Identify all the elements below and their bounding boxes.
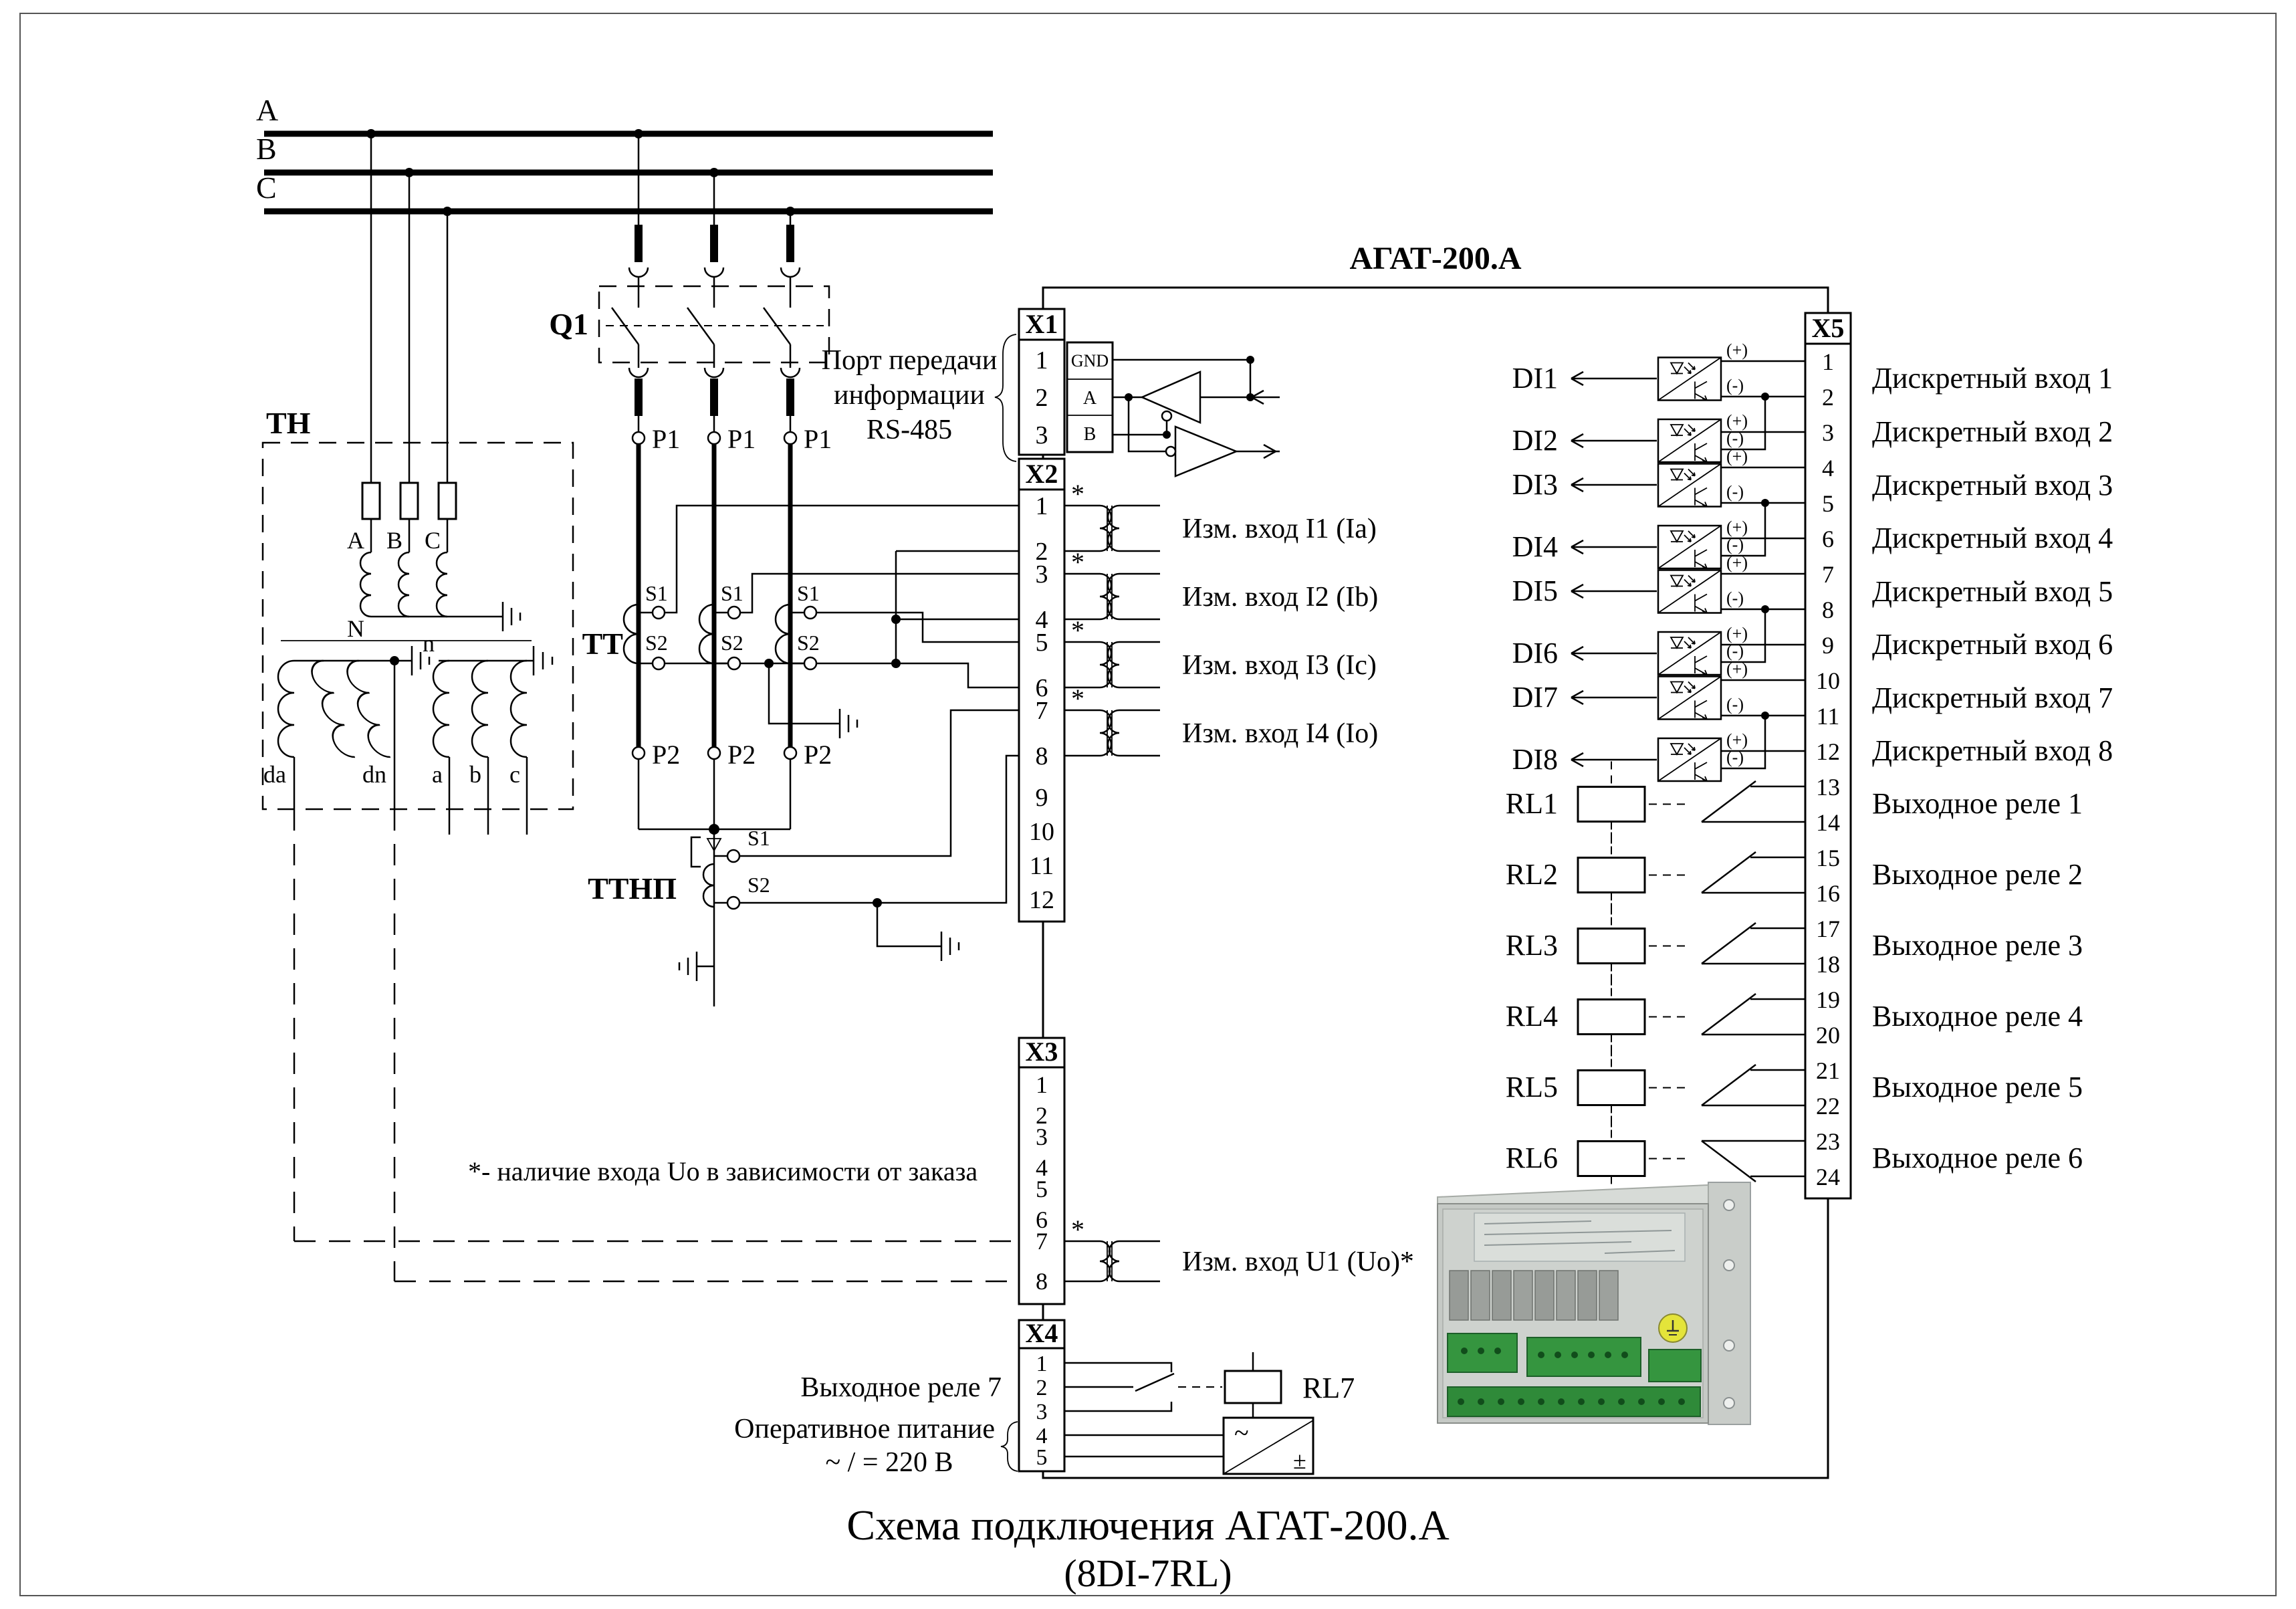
ttnp-label: ТТНП [588,871,677,905]
svg-text:8: 8 [1036,742,1048,770]
relay-rl6: RL6 Выходное реле 6 [1506,1116,2083,1202]
tn-phase-b-label: B [386,527,403,554]
svg-text:RL3: RL3 [1506,929,1558,962]
optocoupler-icon [1658,358,1721,401]
svg-text:2: 2 [1036,384,1048,412]
ttnp-s1-label: S1 [748,826,770,850]
svg-text:*: * [1071,547,1084,577]
svg-text:12: 12 [1816,738,1840,765]
svg-text:(-): (-) [1726,429,1744,448]
connector-x4: X4 1 2 3 4 5 RL7 Выходное реле 7 ~ ± Опе… [734,1318,1355,1478]
relay-contact-icon [1702,1065,1805,1105]
svg-text:3: 3 [1036,560,1048,588]
svg-text:2: 2 [1822,384,1834,411]
svg-text:Дискретный вход 3: Дискретный вход 3 [1872,469,2113,502]
input-u1-label: Изм. вход U1 (Uo)* [1182,1247,1414,1277]
bus-a-label: A [256,93,278,127]
x1-label: X1 [1026,309,1058,339]
input-i3-label: Изм. вход I3 (Ic) [1182,650,1377,681]
q1-disconnector: Q1 [549,134,829,432]
svg-text:Выходное реле 3: Выходное реле 3 [1872,929,2083,962]
relay-coil-icon [1578,833,1689,918]
svg-text:16: 16 [1816,880,1840,907]
relay-coil-icon [1578,903,1689,989]
svg-text:RL4: RL4 [1506,1000,1558,1033]
rl7-label: RL7 [1302,1372,1355,1404]
footnote: *- наличие входа Uo в зависимости от зак… [468,1156,978,1186]
x5-label: X5 [1812,313,1845,343]
svg-text:24: 24 [1816,1164,1840,1190]
ground-icon [679,952,714,981]
input-transformer-u1 [1064,1241,1160,1281]
svg-text:1: 1 [1036,1071,1048,1098]
device-photo [1438,1182,1750,1424]
ground-icon [822,709,857,738]
svg-text:(+): (+) [1726,447,1748,466]
svg-text:8: 8 [1036,1268,1048,1295]
optocoupler-icon [1658,526,1721,568]
svg-text:3: 3 [1822,419,1834,446]
svg-text:DI5: DI5 [1512,574,1558,607]
svg-text:2: 2 [1036,1376,1048,1400]
brace-icon [995,334,1016,461]
svg-text:5: 5 [1822,490,1834,517]
connector-x1: Порт передачи информации RS-485 X1 1 2 3… [822,309,1280,476]
svg-text:5: 5 [1036,1176,1048,1202]
bus-c-label: C [256,171,277,205]
svg-text:9: 9 [1036,784,1048,812]
svg-text:1: 1 [1036,346,1048,374]
relay-rl2: RL2 Выходное реле 2 [1506,833,2083,918]
svg-text:Дискретный вход 7: Дискретный вход 7 [1872,681,2113,714]
tt-p1-label: P1 [652,424,680,454]
device-title: АГАТ-200.А [1349,241,1521,276]
svg-text:10: 10 [1029,818,1054,846]
svg-text:(-): (-) [1726,588,1744,608]
svg-text:4: 4 [1822,455,1834,481]
svg-text:Выходное реле 5: Выходное реле 5 [1872,1071,2083,1103]
svg-text:8: 8 [1822,597,1834,623]
tn-phase-a-label: A [347,527,364,554]
x2-label: X2 [1026,459,1058,489]
x3-label: X3 [1026,1037,1058,1067]
bus-bars: A B C [256,93,993,216]
svg-text:Дискретный вход 5: Дискретный вход 5 [1872,575,2113,608]
svg-text:S1: S1 [797,581,820,605]
svg-text:(-): (-) [1726,535,1744,554]
svg-text:Дискретный вход 1: Дискретный вход 1 [1872,362,2113,395]
optocoupler-icon [1658,419,1721,462]
svg-text:7: 7 [1822,561,1834,588]
x1-caption-2: информации [834,380,985,411]
input-transformer-i3 [1064,642,1160,687]
x4-label: X4 [1026,1318,1058,1348]
svg-text:(-): (-) [1726,376,1744,395]
svg-text:(+): (+) [1726,411,1748,431]
relay-contact-icon [1702,923,1805,964]
bus-b-label: B [256,132,277,166]
svg-text:GND: GND [1071,351,1109,370]
svg-text:*: * [1071,615,1084,645]
svg-text:12: 12 [1029,886,1054,914]
ground-icon [485,602,520,631]
svg-text:Дискретный вход 4: Дискретный вход 4 [1872,522,2113,554]
tn-phase-c-label: C [425,527,441,554]
svg-text:15: 15 [1816,845,1840,871]
power-supply: ~ ± [1064,1418,1313,1474]
svg-text:*: * [1071,683,1084,714]
svg-text:Выходное реле 1: Выходное реле 1 [1872,787,2083,820]
svg-text:RL1: RL1 [1506,787,1558,820]
svg-text:(+): (+) [1726,553,1748,572]
svg-text:3: 3 [1036,1400,1048,1424]
svg-text:(+): (+) [1726,730,1748,750]
dc-symbol: ± [1293,1447,1306,1474]
svg-text:(-): (-) [1726,695,1744,714]
svg-text:(+): (+) [1726,624,1748,643]
svg-text:7: 7 [1036,1228,1048,1255]
input-i2-label: Изм. вход I2 (Ib) [1182,582,1378,613]
ac-symbol: ~ [1234,1418,1249,1448]
svg-text:DI1: DI1 [1512,362,1558,395]
svg-text:3: 3 [1036,421,1048,449]
svg-text:S2: S2 [797,631,820,655]
tn-nsmall-label: n [423,630,435,657]
title-block: Схема подключения АГАТ-200.А (8DI-7RL) [846,1501,1449,1595]
ttnp-s2-label: S2 [748,873,770,897]
svg-text:DI3: DI3 [1512,468,1558,501]
svg-text:S1: S1 [721,581,743,605]
svg-text:(-): (-) [1726,748,1744,767]
svg-text:1: 1 [1036,1352,1048,1376]
input-i4-label: Изм. вход I4 (Io) [1182,718,1378,749]
svg-text:17: 17 [1816,916,1840,942]
relay-contact-icon [1702,994,1805,1035]
tt-s2-label: S2 [645,631,668,655]
title-line-2: (8DI-7RL) [1064,1551,1232,1595]
optocoupler-icon [1658,677,1721,720]
svg-text:P1: P1 [804,424,832,454]
svg-text:11: 11 [1030,852,1054,880]
svg-text:19: 19 [1816,986,1840,1013]
svg-text:P1: P1 [727,424,756,454]
connector-x2: X2 1 2 3 4 5 6 7 8 9 10 11 12 * * * * Из… [1019,459,1378,922]
svg-text:RL6: RL6 [1506,1142,1558,1174]
relay-contact-icon [1702,1141,1805,1182]
svg-text:1: 1 [1822,348,1834,375]
schematic-page: A B C ТН A B C N da dn n a b c Q [0,0,2296,1609]
svg-text:Выходное реле 2: Выходное реле 2 [1872,858,2083,891]
svg-text:7: 7 [1036,697,1048,725]
fuse-a [362,483,380,519]
svg-text:P2: P2 [804,740,832,770]
svg-text:21: 21 [1816,1057,1840,1084]
tn-a-label: a [432,761,443,788]
relay-coil-icon [1578,974,1689,1060]
svg-text:5: 5 [1036,629,1048,657]
relay-rl1: RL1 Выходное реле 1 [1506,762,2083,847]
svg-text:Дискретный вход 8: Дискретный вход 8 [1872,734,2113,767]
svg-text:DI7: DI7 [1512,681,1558,714]
svg-text:P2: P2 [727,740,756,770]
svg-text:20: 20 [1816,1022,1840,1049]
connector-x3: X3 1 2 3 4 5 6 7 8 * Изм. вход U1 (Uo)* [1019,1037,1414,1304]
svg-text:DI8: DI8 [1512,743,1558,776]
svg-text:23: 23 [1816,1128,1840,1155]
svg-text:DI4: DI4 [1512,530,1558,563]
relay-rl4: RL4 Выходное реле 4 [1506,974,2083,1060]
relay-coil-icon [1578,762,1689,847]
svg-text:DI6: DI6 [1512,637,1558,669]
svg-text:14: 14 [1816,809,1840,836]
brace-icon [1001,1422,1018,1471]
tt-current-transformers: ТТ P1 S1 S2 P2 P1 S1 S2 P2 P1 S1 S2 P2 [582,424,832,829]
power-caption-2: ~ / = 220 В [825,1447,953,1478]
svg-text:RL2: RL2 [1506,858,1558,891]
relay-contact-icon [1702,781,1805,822]
svg-text:Выходное реле 6: Выходное реле 6 [1872,1142,2083,1174]
svg-text:(-): (-) [1726,482,1744,502]
svg-text:(+): (+) [1726,518,1748,537]
svg-text:11: 11 [1817,703,1840,730]
fuse-b [400,483,418,519]
relay-rl7: RL7 [1064,1352,1355,1422]
svg-text:B: B [1084,424,1097,445]
q1-label: Q1 [549,307,588,341]
tn-n-label: N [347,615,364,642]
svg-text:10: 10 [1816,667,1840,694]
svg-text:18: 18 [1816,951,1840,978]
x1-caption-1: Порт передачи [822,345,998,376]
relay-contact-icon [1702,852,1805,893]
tn-label: ТН [266,406,311,440]
relay7-caption: Выходное реле 7 [800,1372,1002,1403]
tt-p2-label: P2 [652,740,680,770]
svg-text:(+): (+) [1726,659,1748,679]
optocoupler-icon [1658,738,1721,781]
input-transformer-i2 [1064,574,1160,619]
input-transformer-i4 [1064,710,1160,756]
relay-rl3: RL3 Выходное реле 3 [1506,903,2083,989]
svg-text:22: 22 [1816,1093,1840,1119]
svg-text:Дискретный вход 6: Дискретный вход 6 [1872,628,2113,661]
svg-text:6: 6 [1822,526,1834,552]
schematic-canvas: A B C ТН A B C N da dn n a b c Q [0,0,2296,1609]
tn-c-label: c [509,761,520,788]
svg-text:13: 13 [1816,774,1840,800]
svg-text:Выходное реле 4: Выходное реле 4 [1872,1000,2083,1033]
tn-b-label: b [469,761,481,788]
tn-dn-label: dn [362,761,386,788]
fuse-c [439,483,456,519]
tn-da-label: da [263,761,286,788]
svg-text:S2: S2 [721,631,743,655]
svg-text:*: * [1071,1214,1084,1245]
svg-text:(+): (+) [1726,340,1748,360]
connector-x5: X5 1 2 3 4 5 6 7 8 9 10 11 12 13 14 15 1… [1805,313,1851,1198]
svg-text:1: 1 [1036,492,1048,520]
rs485-transceiver [1113,356,1280,476]
input-transformer-i1 [1064,506,1160,551]
tt-label: ТТ [582,627,623,661]
optocoupler-icon [1658,464,1721,507]
svg-text:RL5: RL5 [1506,1071,1558,1103]
power-caption-1: Оперативное питание [734,1414,995,1444]
title-line-1: Схема подключения АГАТ-200.А [846,1501,1449,1549]
optocoupler-icon [1658,632,1721,675]
ground-icon [924,932,959,961]
svg-text:5: 5 [1036,1445,1048,1470]
svg-text:(-): (-) [1726,641,1744,661]
svg-text:A: A [1083,388,1097,409]
optocoupler-icon [1658,570,1721,613]
svg-text:*: * [1071,479,1084,509]
x1-caption-3: RS-485 [867,415,952,445]
svg-text:9: 9 [1822,632,1834,659]
relay-coil-icon [1578,1045,1689,1131]
relay-rl5: RL5 Выходное реле 5 [1506,1045,2083,1131]
svg-text:3: 3 [1036,1123,1048,1150]
svg-text:Дискретный вход 2: Дискретный вход 2 [1872,415,2113,448]
tt-s1-label: S1 [645,581,668,605]
svg-text:DI2: DI2 [1512,424,1558,457]
input-i1-label: Изм. вход I1 (Ia) [1182,514,1377,544]
